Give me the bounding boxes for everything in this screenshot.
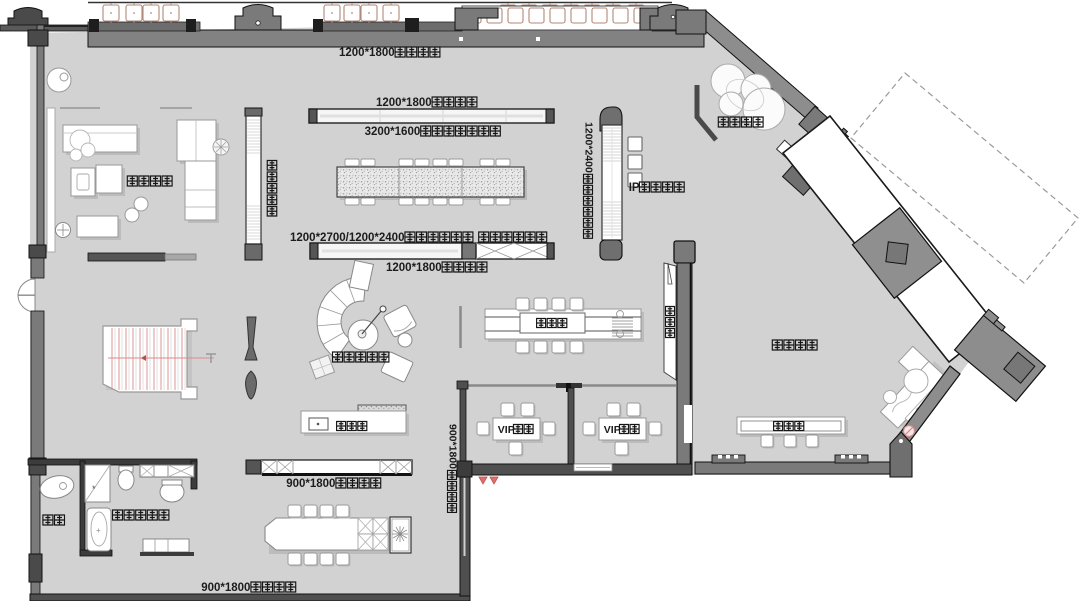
svg-text:IP: IP: [629, 182, 640, 194]
svg-text:VIP: VIP: [498, 424, 515, 436]
svg-text:VIP: VIP: [604, 424, 621, 436]
svg-text:+: +: [96, 526, 101, 535]
svg-text:900*1800: 900*1800: [286, 478, 335, 490]
svg-text:900*1800: 900*1800: [201, 582, 250, 594]
svg-text:1200*1800: 1200*1800: [386, 262, 442, 274]
svg-text:1200*1800: 1200*1800: [339, 47, 395, 59]
svg-text:1200*2400: 1200*2400: [583, 122, 595, 173]
svg-text:900*1800: 900*1800: [447, 424, 459, 469]
svg-text:*: *: [92, 484, 96, 494]
svg-text:1200*1800: 1200*1800: [376, 97, 432, 109]
svg-text:3200*1600: 3200*1600: [365, 126, 421, 138]
